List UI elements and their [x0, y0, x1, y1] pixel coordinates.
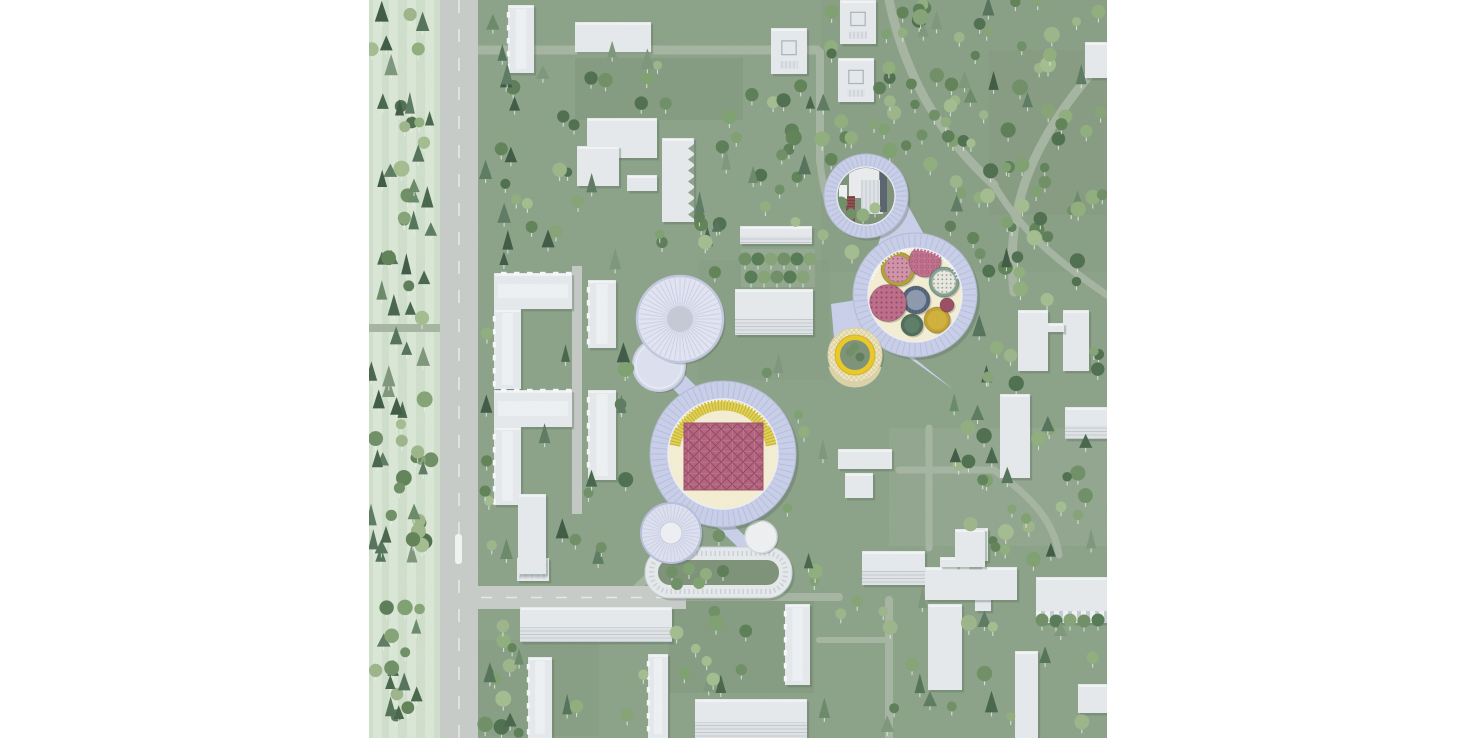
site-plan-map	[369, 0, 1107, 738]
site-plan-svg	[369, 0, 1107, 738]
grain-overlay	[369, 0, 1107, 738]
screenshot-canvas	[0, 0, 1476, 738]
